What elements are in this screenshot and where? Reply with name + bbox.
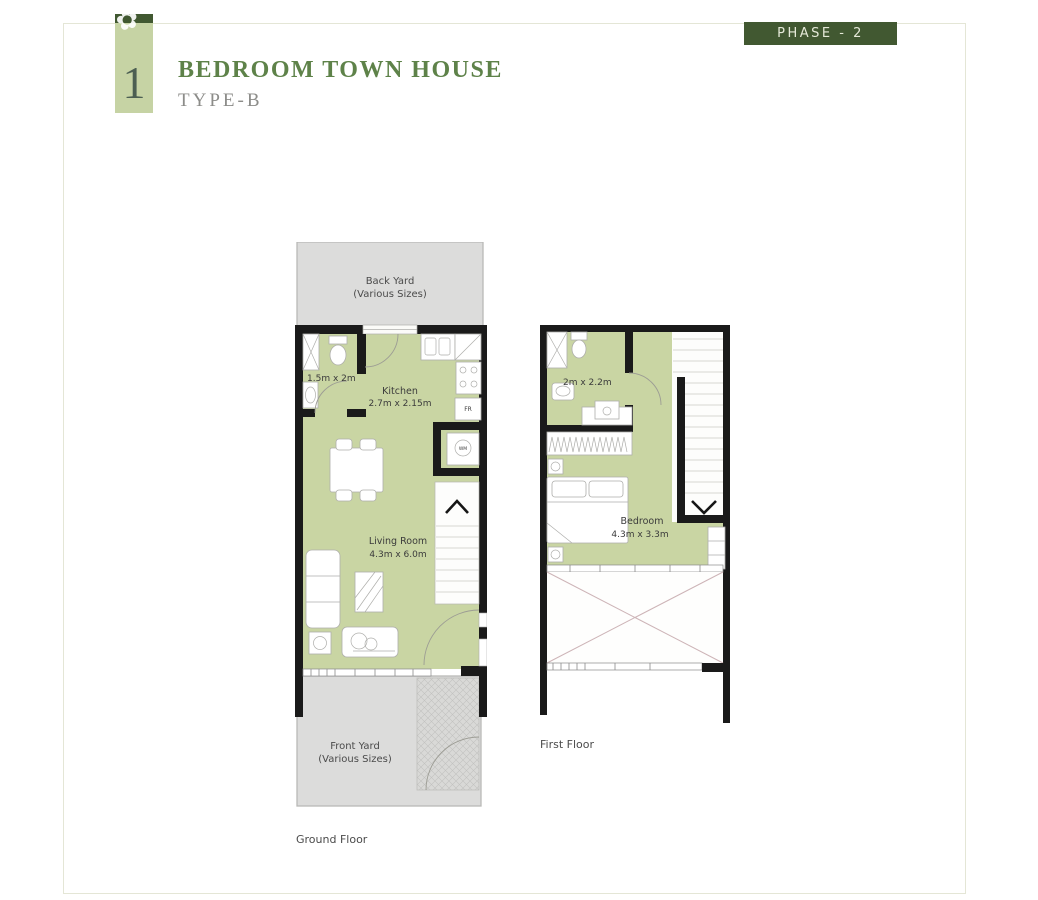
gf-dining-table: [330, 439, 383, 501]
gf-washer-nook: WM: [447, 433, 479, 465]
svg-text:2m x 2.2m: 2m x 2.2m: [563, 378, 612, 388]
ff-wall-stub: [702, 663, 730, 672]
gf-coffee-table: [342, 627, 398, 657]
first-floor-caption: First Floor: [540, 738, 594, 751]
gf-kitchen-corner-counter: [455, 334, 481, 360]
svg-text:(Various Sizes): (Various Sizes): [318, 754, 392, 765]
ff-window-band-top: [547, 565, 723, 572]
svg-text:(Various Sizes): (Various Sizes): [353, 289, 427, 300]
svg-text:1.5m x 2m: 1.5m x 2m: [307, 374, 356, 384]
gf-side-table: [309, 632, 331, 654]
phase-badge: PHASE - 2: [744, 22, 897, 45]
svg-text:Front Yard: Front Yard: [330, 741, 380, 752]
unit-number-badge: ✿ 1: [115, 14, 153, 113]
svg-text:Kitchen: Kitchen: [382, 386, 418, 397]
ff-window-band-bottom: [547, 663, 730, 672]
page-title: BEDROOM TOWN HOUSE: [178, 57, 503, 84]
gf-entrance-frame: [479, 613, 487, 627]
badge-number: 1: [115, 60, 153, 106]
ff-void-open-below: [547, 572, 723, 663]
gf-toilet: [329, 336, 347, 365]
ff-toilet: [571, 332, 587, 358]
gf-stove: [456, 362, 481, 394]
svg-text:4.3m x 3.3m: 4.3m x 3.3m: [611, 530, 668, 540]
first-floor-plan: 2m x 2.2m: [540, 325, 730, 723]
ff-wardrobe: [547, 432, 632, 455]
gf-paved-driveway: [417, 678, 479, 790]
ground-floor-plan: Back Yard (Various Sizes) Front Yard (Va…: [295, 242, 487, 808]
page-border: [63, 23, 966, 894]
gf-kitchen-sink: [421, 334, 455, 360]
svg-text:Bedroom: Bedroom: [621, 516, 664, 527]
gf-rug: [355, 572, 383, 612]
svg-text:2.7m x 2.15m: 2.7m x 2.15m: [369, 399, 432, 409]
svg-text:FR: FR: [464, 406, 472, 413]
gf-window-band: [303, 669, 431, 676]
svg-text:WM: WM: [459, 446, 467, 452]
page-subtitle: TYPE-B: [178, 90, 263, 112]
gf-sofa: [306, 550, 340, 628]
svg-text:Living Room: Living Room: [369, 536, 427, 547]
ff-nightstand-bottom: [548, 547, 563, 562]
svg-text:Back Yard: Back Yard: [366, 276, 415, 287]
brochure-page: ✿ 1 BEDROOM TOWN HOUSE TYPE-B PHASE - 2 …: [0, 0, 1038, 900]
ff-nightstand-top: [548, 459, 563, 474]
ff-staircase: [672, 332, 730, 523]
gf-front-yard: Front Yard (Various Sizes): [297, 676, 481, 806]
ground-floor-caption: Ground Floor: [296, 833, 367, 846]
ff-ac-unit: [708, 527, 725, 569]
gf-staircase: [435, 482, 479, 604]
gf-fridge: FR: [455, 398, 481, 420]
svg-text:4.3m x 6.0m: 4.3m x 6.0m: [369, 550, 426, 560]
gf-back-yard: Back Yard (Various Sizes): [297, 242, 483, 326]
